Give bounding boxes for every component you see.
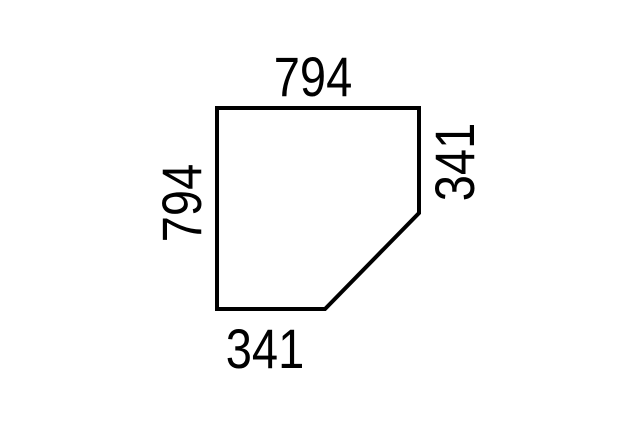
dimension-right-label: 341 xyxy=(427,123,483,201)
diagram-canvas: 794 794 341 341 xyxy=(0,0,634,423)
dimension-top-label: 794 xyxy=(274,49,352,105)
panel-outline xyxy=(217,108,419,309)
dimension-left-label: 794 xyxy=(154,164,210,242)
dimension-bottom-label: 341 xyxy=(226,321,304,377)
